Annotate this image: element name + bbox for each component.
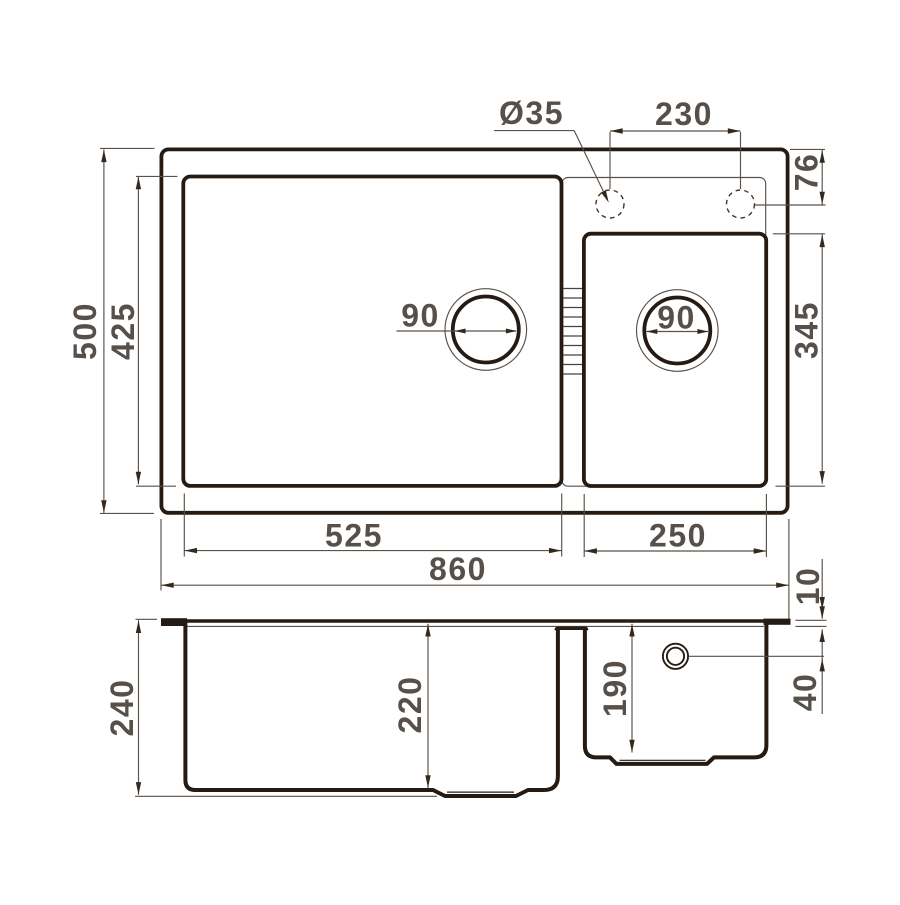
svg-text:500: 500 (67, 302, 103, 360)
svg-text:76: 76 (789, 153, 825, 192)
svg-text:10: 10 (790, 567, 826, 606)
svg-text:90: 90 (657, 300, 696, 336)
svg-text:240: 240 (104, 679, 140, 737)
svg-text:Ø35: Ø35 (499, 95, 564, 131)
svg-text:860: 860 (429, 551, 487, 587)
svg-text:525: 525 (325, 518, 383, 554)
svg-text:345: 345 (789, 301, 825, 359)
svg-text:40: 40 (787, 673, 823, 712)
svg-text:230: 230 (655, 96, 713, 132)
svg-text:425: 425 (105, 302, 141, 360)
svg-text:220: 220 (392, 676, 428, 734)
svg-text:250: 250 (649, 518, 707, 554)
svg-text:190: 190 (597, 659, 633, 717)
svg-text:90: 90 (401, 298, 440, 334)
